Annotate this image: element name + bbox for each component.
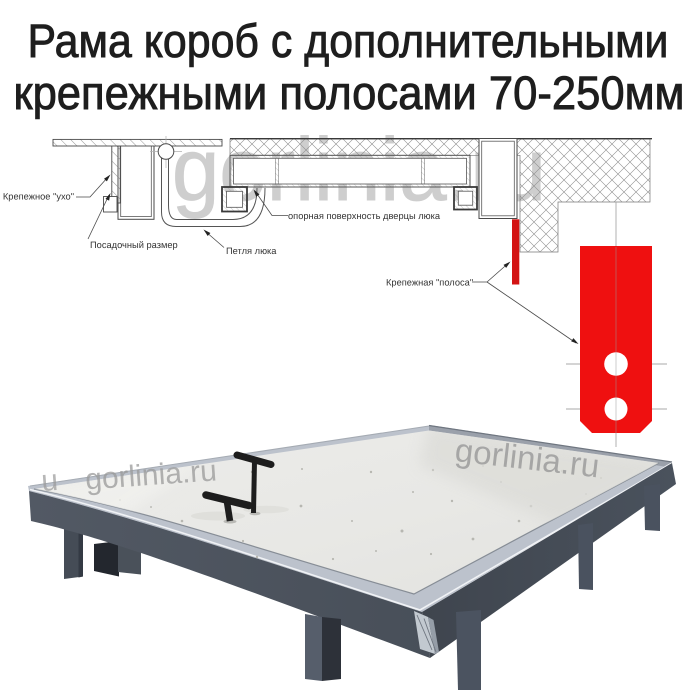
svg-text:крепежными полосами 70-250мм: крепежными полосами 70-250мм [14, 66, 685, 119]
svg-text:u: u [40, 464, 59, 498]
svg-text:Петля люка: Петля люка [226, 246, 277, 256]
svg-text:Крепежная "полоса": Крепежная "полоса" [386, 278, 473, 288]
svg-text:Посадочный размер: Посадочный размер [90, 240, 178, 250]
svg-text:Крепежное "ухо": Крепежное "ухо" [3, 192, 74, 202]
svg-text:опорная поверхность дверцы люк: опорная поверхность дверцы люка [288, 211, 441, 221]
svg-text:Рама короб с дополнительными: Рама короб с дополнительными [28, 14, 669, 67]
